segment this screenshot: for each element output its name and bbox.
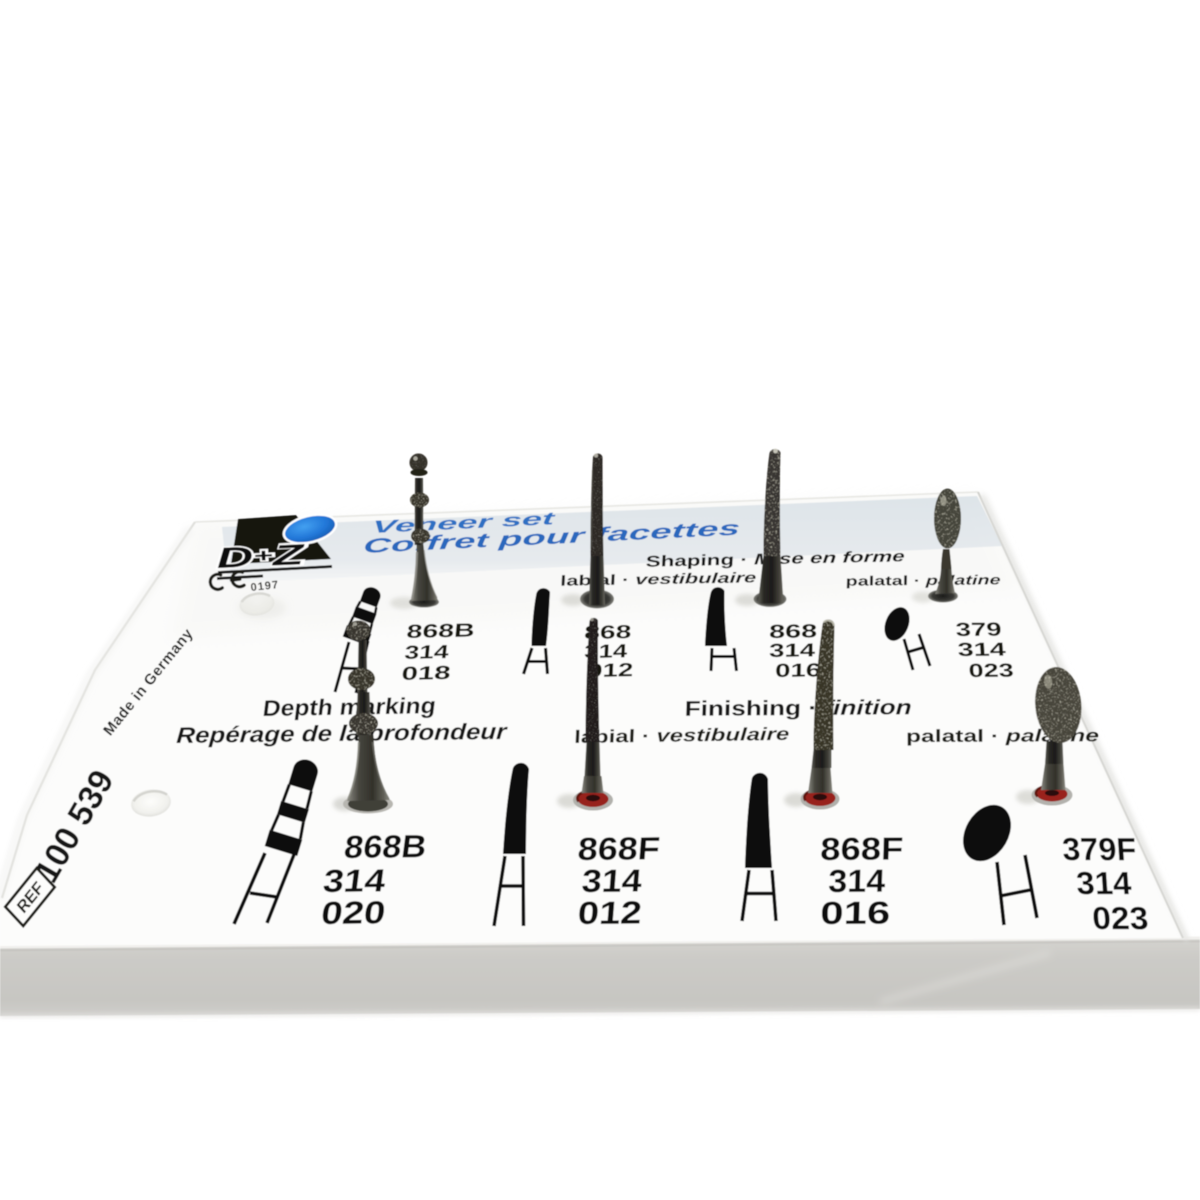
svg-text:314: 314 — [404, 642, 451, 664]
svg-text:868F: 868F — [820, 831, 904, 867]
svg-text:314: 314 — [580, 863, 643, 899]
svg-text:314: 314 — [321, 862, 388, 899]
svg-text:palatal · palatine: palatal · palatine — [845, 572, 1001, 588]
svg-text:314: 314 — [769, 640, 816, 662]
svg-text:labial · vestibulaire: labial · vestibulaire — [574, 724, 790, 747]
svg-text:314: 314 — [828, 863, 886, 899]
svg-text:016: 016 — [775, 660, 821, 682]
svg-text:012: 012 — [576, 894, 643, 931]
svg-text:Finishing · finition: Finishing · finition — [684, 696, 912, 721]
svg-text:Depth marking: Depth marking — [261, 693, 437, 721]
svg-text:Repérage de la profondeur: Repérage de la profondeur — [176, 719, 509, 748]
svg-text:379: 379 — [955, 620, 1002, 641]
svg-text:868B: 868B — [342, 828, 429, 865]
svg-text:018: 018 — [401, 663, 453, 685]
svg-text:023: 023 — [968, 661, 1014, 682]
svg-text:868F: 868F — [576, 830, 661, 867]
svg-text:868B: 868B — [406, 620, 476, 643]
svg-text:023: 023 — [1091, 900, 1149, 936]
svg-text:016: 016 — [820, 895, 891, 931]
svg-text:314: 314 — [1075, 865, 1133, 901]
svg-text:314: 314 — [957, 640, 1007, 661]
svg-text:020: 020 — [319, 894, 388, 931]
svg-text:379F: 379F — [1061, 831, 1137, 867]
